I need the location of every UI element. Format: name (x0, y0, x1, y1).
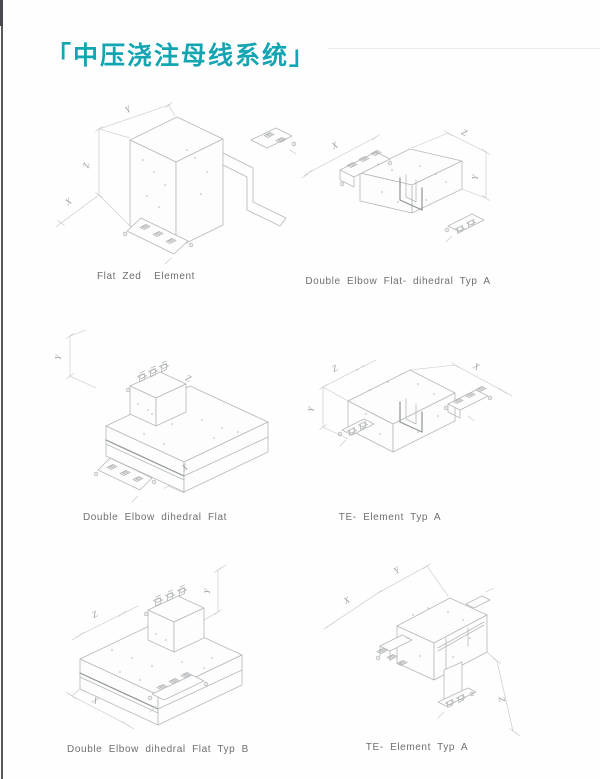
catalog-page: 「中压浇注母线系统」 (0, 0, 600, 779)
dim-label-y: Y (392, 564, 402, 576)
double-elbow-dihedral-flat-b-drawing: Z Y X (52, 560, 300, 746)
figure-caption: Double Elbow dihedral Flat (55, 512, 255, 523)
line-art (340, 149, 484, 242)
figure-flat-zed-element: Y Z X (55, 98, 300, 270)
line-art (376, 588, 494, 718)
dim-label-z: Z (184, 373, 194, 385)
double-elbow-flat-dihedral-a-drawing: X Z Y (300, 112, 558, 264)
figure-double-elbow-dihedral-flat-b: Z Y X (52, 560, 300, 746)
figure-caption: Double Elbow Flat- dihedral Typ A (300, 276, 496, 287)
te-element-a-drawing: X Y Z (298, 560, 560, 746)
line-art (123, 117, 296, 264)
figure-te-element-a-1: Z Y X (300, 340, 560, 474)
scan-edge-line (1, 0, 3, 779)
dim-label-x: X (62, 196, 74, 208)
scan-edge-mark (0, 0, 3, 26)
figure-caption: Flat Zed Element (50, 271, 242, 282)
page-title: 「中压浇注母线系统」 (46, 36, 316, 72)
te-element-a-drawing: Z Y X (300, 340, 560, 474)
figure-double-elbow-dihedral-flat: Y Z X (52, 330, 300, 510)
figure-caption: TE- Element Typ A (295, 512, 485, 523)
line-art (338, 370, 492, 452)
dim-label-x: X (329, 139, 340, 151)
title-rule-line (328, 48, 600, 49)
line-art (94, 361, 268, 502)
dim-label-y: Y (53, 353, 64, 361)
figure-double-elbow-flat-dihedral-a: X Z Y (300, 112, 558, 264)
dim-label-z: Z (90, 608, 100, 620)
dim-label-y: Y (470, 173, 481, 181)
dim-label-x: X (471, 360, 482, 372)
dim-label-y: Y (306, 405, 317, 413)
dim-label-z: Z (497, 696, 508, 704)
dim-label-x: X (90, 694, 101, 706)
dim-label-x: X (341, 594, 352, 606)
dim-label-y: Y (202, 587, 213, 595)
dim-label-y: Y (123, 103, 133, 115)
figure-te-element-a-2: X Y Z (298, 560, 560, 746)
dim-label-z: Z (81, 161, 92, 169)
flat-zed-element-drawing: Y Z X (55, 98, 300, 270)
figure-caption: TE- Element Typ A (320, 742, 514, 753)
dim-label-z: Z (330, 362, 340, 374)
double-elbow-dihedral-flat-drawing: Y Z X (52, 330, 300, 510)
figure-caption: Double Elbow dihedral Flat Typ B (55, 744, 261, 755)
dim-label-z: Z (460, 127, 470, 139)
